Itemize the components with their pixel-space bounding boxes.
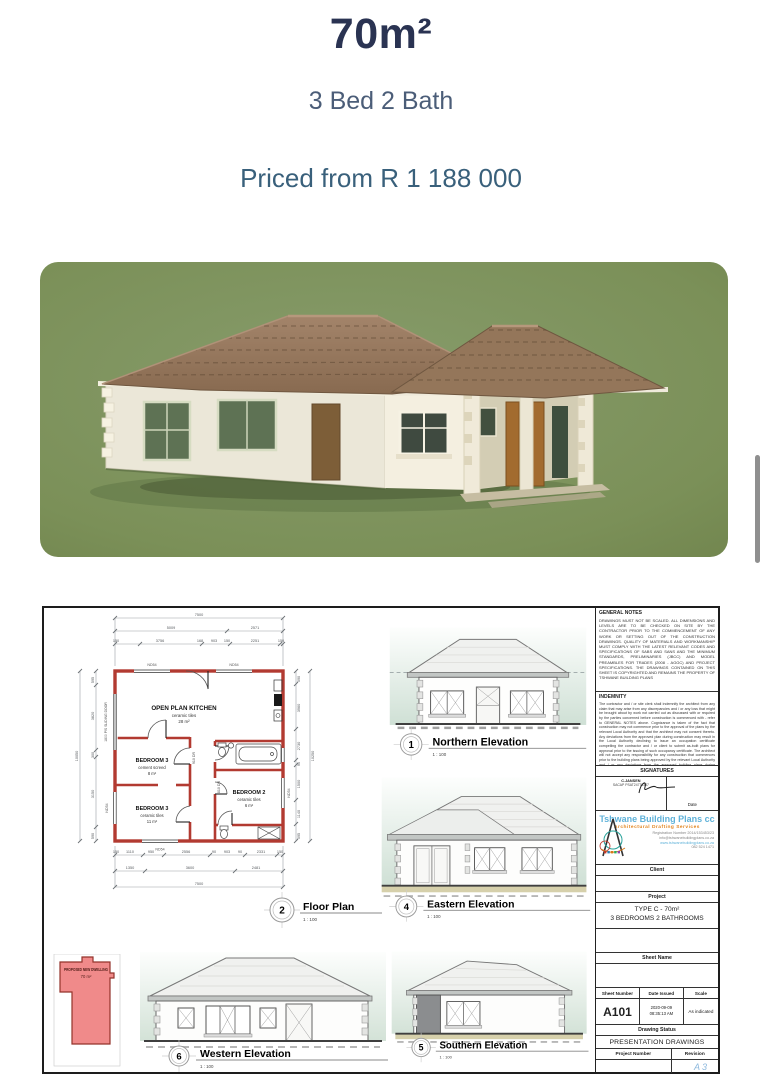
room-area: 8 m² (148, 771, 157, 776)
dim: 90 (297, 762, 301, 766)
site-area: 70 m² (81, 974, 92, 979)
dim: 150 (224, 639, 230, 643)
dim: 3600 (186, 866, 194, 870)
view-scale: 1 : 100 (427, 914, 441, 919)
dim: 10050 (75, 751, 79, 762)
view-number: 4 (404, 902, 410, 913)
dim: 1500 (297, 780, 301, 788)
dim: 90 (212, 850, 216, 854)
floor-plan-drawing: 7500 5009 2571 150 3756 168 903 150 2251… (50, 610, 385, 960)
house-render-illustration (40, 262, 728, 557)
project-number-value-cell (596, 1060, 672, 1073)
sheet-number-value: A101 (596, 999, 640, 1024)
dim: 2331 (257, 850, 265, 854)
dim: 3820 (91, 712, 95, 720)
dim: 1110 (126, 850, 134, 854)
dim: 150 (278, 639, 284, 643)
client-value-cell (596, 876, 718, 892)
elevation-title: 4 Eastern Elevation 1 : 100 (389, 889, 590, 921)
room-area: 11 m² (147, 819, 158, 824)
door-tag: 910 DR (192, 752, 196, 765)
room-finish: ceramic tiles (140, 813, 163, 818)
project-number-header: Project Number (596, 1049, 672, 1059)
elevation-door-icon (417, 995, 441, 1034)
view-number: 6 (176, 1052, 181, 1063)
drawing-status-value: PRESENTATION DRAWINGS (596, 1036, 718, 1049)
view-title: Western Elevation (200, 1048, 291, 1060)
dim: 2556 (182, 850, 190, 854)
dim: 903 (224, 850, 230, 854)
dim: 3960 (297, 704, 301, 712)
elevation-window-icon (445, 1002, 482, 1029)
sliding-door-tag: 1800 P/S SLIDING DOOR (104, 702, 108, 742)
elevation-door-icon (414, 846, 450, 886)
dim: 903 (211, 639, 217, 643)
window-tag: ND54 (229, 663, 238, 667)
drawing-status-header: Drawing Status (596, 1025, 718, 1036)
project-name-line1: TYPE C - 70m² (596, 906, 718, 915)
dim: 590 (297, 676, 301, 682)
date-issued-value: 2020-09-09 08:35:13 AM (640, 999, 684, 1024)
dim: 1350 (126, 866, 134, 870)
view-scale: 1 : 100 (433, 752, 447, 757)
site-label: PROPOSED NEW DWELLING (64, 967, 108, 972)
western-elevation-drawing: 6 Western Elevation 1 : 100 (134, 950, 392, 1072)
bed-bath-subtitle: 3 Bed 2 Bath (0, 87, 762, 116)
price-text: Priced from R 1 188 000 (0, 163, 762, 194)
dim: 595 (91, 677, 95, 683)
window-tag: ND54 (155, 848, 164, 852)
dim: 7500 (195, 613, 203, 617)
signatures-header: SIGNATURES (596, 766, 718, 777)
floor-plan-title: 2 Floor Plan 1 : 100 (264, 892, 382, 928)
room-area: 6 m² (245, 803, 254, 808)
dim: 595 (297, 833, 301, 839)
house-render-image (40, 262, 728, 557)
indemnity-title: INDEMNITY (599, 694, 715, 700)
window-tag: ND54 (287, 788, 291, 797)
dim: 950 (148, 850, 154, 854)
room-name: BEDROOM 2 (233, 790, 266, 796)
southern-elevation-drawing: 5 Southern Elevation 1 : 100 (388, 950, 594, 1072)
sheet-name-header: Sheet Name (596, 953, 718, 964)
elevation-door-icon (286, 1004, 312, 1041)
view-scale: 1 : 100 (200, 1064, 214, 1069)
window-tag: ND54 (147, 663, 156, 667)
sheet-number-header: Sheet Number (596, 988, 640, 998)
project-name-line2: 3 BEDROOMS 2 BATHROOMS (596, 915, 718, 924)
sheet-name-value-cell (596, 964, 718, 988)
dim: 90 (238, 850, 242, 854)
dim: 3756 (156, 639, 164, 643)
revision-header: Revision (672, 1049, 718, 1059)
dim: 1140 (297, 810, 301, 818)
dim: 168 (197, 639, 203, 643)
watermark-icon: A3 (694, 1062, 709, 1072)
general-notes-text: DRAWINGS MUST NOT BE SCALED. ALL DIMENSI… (599, 618, 715, 680)
room-finish: ceramic tiles (172, 713, 197, 718)
room-finish: ceramic tiles (237, 797, 260, 802)
view-title: Eastern Elevation (427, 899, 514, 910)
dim: 5009 (167, 626, 175, 630)
dim: 2730 (297, 742, 301, 750)
front-window-icon (396, 412, 452, 459)
room-name: BEDROOM 3 (136, 806, 169, 812)
dim: 3150 (91, 790, 95, 798)
dim: 7500 (195, 882, 203, 886)
view-number: 2 (279, 906, 285, 917)
dim: 300 (91, 752, 95, 758)
date-line2: 08:35:13 AM (640, 1011, 683, 1017)
window-tag: ND54 (105, 803, 109, 812)
view-title: Southern Elevation (440, 1040, 528, 1051)
dim: 590 (91, 833, 95, 839)
view-title: Northern Elevation (433, 736, 529, 748)
scale-header: Scale (684, 988, 718, 998)
signature-icon (631, 778, 681, 796)
company-block: Tshwane Building Plans cc Architectural … (596, 811, 718, 865)
date-issued-header: Date Issued (640, 988, 684, 998)
dim: 2251 (251, 639, 259, 643)
title-block: GENERAL NOTES DRAWINGS MUST NOT BE SCALE… (595, 608, 718, 1072)
room-name: OPEN PLAN KITCHEN (151, 705, 217, 712)
room-area: 28 m² (178, 719, 190, 724)
scale-value: As indicated (684, 999, 718, 1024)
door-tag: 810 DR (217, 781, 221, 794)
view-scale: 1 : 100 (303, 917, 317, 922)
dim: 150 (113, 639, 119, 643)
elevation-title: 6 Western Elevation 1 : 100 (162, 1040, 388, 1072)
project-header: Project (596, 892, 718, 903)
view-scale: 1 : 100 (440, 1055, 453, 1060)
drawing-sheet: 7500 5009 2571 150 3756 168 903 150 2251… (42, 606, 720, 1074)
room-name: BEDROOM 3 (136, 758, 169, 764)
site-plan-drawing: PROPOSED NEW DWELLING 70 m² (52, 954, 132, 1072)
dim: 150 (277, 850, 283, 854)
dim: 10250 (311, 751, 315, 762)
page: 70m² 3 Bed 2 Bath Priced from R 1 188 00… (0, 0, 762, 1080)
side-door-icon (312, 404, 340, 480)
view-number: 5 (419, 1043, 424, 1053)
eastern-elevation-drawing: 4 Eastern Elevation 1 : 100 (376, 764, 594, 922)
dim: 150 (113, 850, 119, 854)
project-spacer (596, 929, 718, 953)
indemnity-text: The contractor and / or site clerk shall… (599, 702, 715, 766)
dim: 2571 (251, 626, 259, 630)
architect-signature-cell: C.JANSEN SACAP PSAT24776387 (596, 777, 667, 810)
northern-elevation-drawing: 1 Northern Elevation 1 : 100 (382, 614, 594, 762)
scrollbar-thumb[interactable] (755, 455, 760, 563)
general-notes-title: GENERAL NOTES (599, 610, 715, 616)
view-number: 1 (408, 740, 414, 751)
page-title: 70m² (0, 10, 762, 59)
room-finish: cement screed (138, 765, 166, 770)
view-title: Floor Plan (303, 901, 354, 913)
dim: 2481 (252, 866, 260, 870)
elevation-door-icon (476, 687, 499, 724)
client-header: Client (596, 865, 718, 876)
company-logo-icon (598, 816, 628, 860)
elevation-title: 1 Northern Elevation 1 : 100 (394, 727, 587, 760)
project-name: TYPE C - 70m² 3 BEDROOMS 2 BATHROOMS (596, 903, 718, 929)
